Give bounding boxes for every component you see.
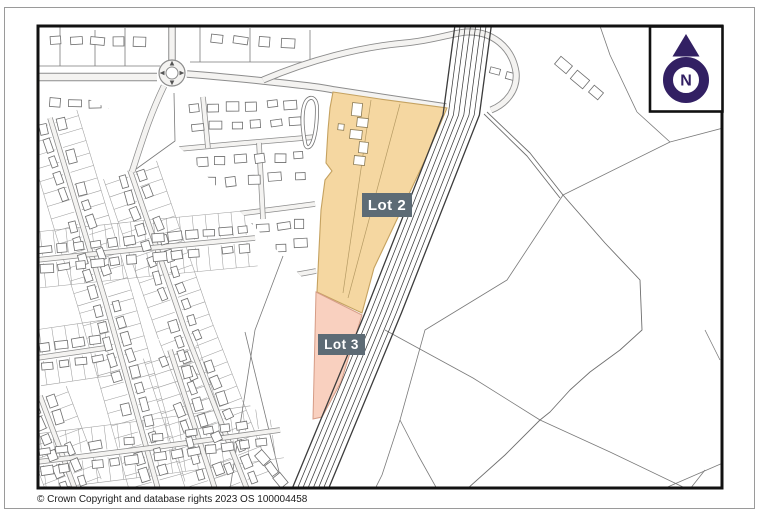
lot3-label: Lot 3 bbox=[318, 334, 365, 355]
north-arrow-indicator: N bbox=[650, 27, 723, 112]
lot3-label-text: Lot 3 bbox=[324, 337, 359, 352]
lot2-label-text: Lot 2 bbox=[368, 197, 406, 214]
site-plan-page: { "map": { "lot2_label": "Lot 2", "lot3_… bbox=[0, 0, 763, 520]
copyright-notice: © Crown Copyright and database rights 20… bbox=[37, 494, 308, 505]
map-content: Lot 2 Lot 3 bbox=[14, 25, 723, 499]
north-letter: N bbox=[680, 73, 692, 90]
site-plan-map: Lot 2 Lot 3 N © Crown Copyright and data… bbox=[0, 0, 763, 520]
lot2-label: Lot 2 bbox=[362, 193, 412, 217]
